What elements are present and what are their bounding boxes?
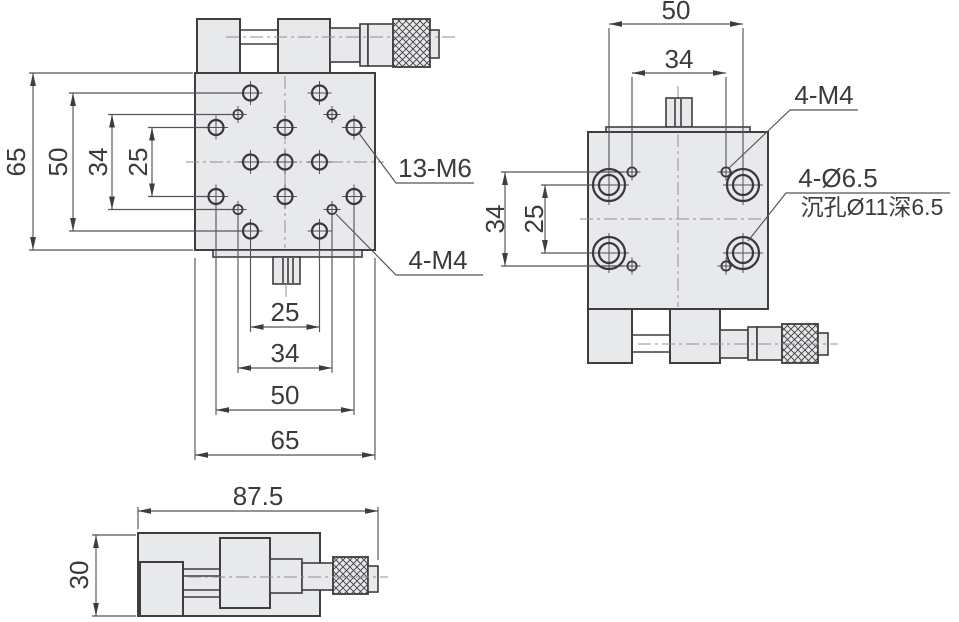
label-13-M6: 13-M6 — [398, 153, 472, 183]
dim-25-left: 25 — [123, 148, 153, 177]
dim-65-bottom: 65 — [271, 425, 300, 455]
bottom-knob — [273, 257, 300, 301]
dim-65-left: 65 — [1, 148, 31, 177]
dim-30: 30 — [64, 561, 94, 590]
view-side: 87.5 30 — [64, 481, 388, 616]
dim-25-side: 25 — [519, 205, 549, 234]
drawing-canvas: 65 50 34 25 25 34 50 65 — [0, 0, 959, 622]
label-4-M4: 4-M4 — [794, 80, 853, 110]
dim-34-left: 34 — [83, 148, 113, 177]
dim-34-bottom: 34 — [271, 338, 300, 368]
label-counterbore-note: 沉孔Ø11深6.5 — [801, 194, 944, 220]
label-counterbore-dia: 4-Ø6.5 — [798, 163, 878, 193]
dim-34-side: 34 — [480, 205, 510, 234]
dim-50-bottom: 50 — [271, 380, 300, 410]
micrometer-bottom — [588, 309, 838, 363]
top-knob — [666, 86, 692, 127]
dim-87-5: 87.5 — [233, 481, 284, 511]
side-left-block — [140, 562, 183, 616]
base-strip — [213, 250, 362, 257]
knurled-knob — [333, 557, 368, 594]
dim-50-top: 50 — [662, 0, 691, 25]
dim-34-top: 34 — [665, 44, 694, 74]
dim-50-left: 50 — [43, 148, 73, 177]
view-bottom-face: 50 34 34 25 4-M4 4-Ø6.5 — [480, 0, 950, 363]
micrometer-top — [197, 19, 455, 73]
technical-drawing: 65 50 34 25 25 34 50 65 — [0, 0, 959, 622]
knurled-knob — [393, 19, 430, 67]
label-4-M4-top: 4-M4 — [408, 245, 467, 275]
dim-25-bottom: 25 — [271, 297, 300, 327]
view-top: 65 50 34 25 25 34 50 65 — [1, 19, 483, 460]
side-center-block — [220, 538, 270, 608]
